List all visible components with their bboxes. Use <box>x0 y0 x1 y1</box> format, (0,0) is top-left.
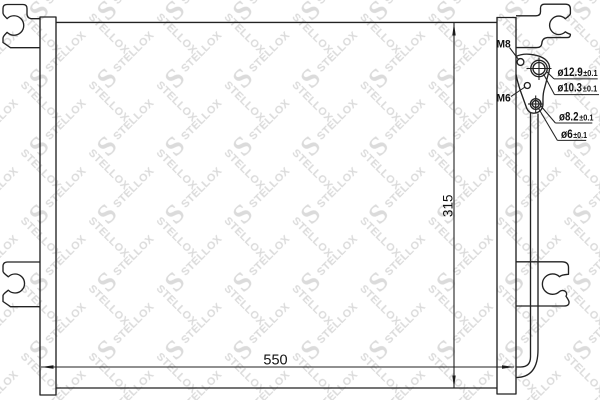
svg-text:ø8.2: ø8.2 <box>559 109 579 123</box>
svg-text:ø10.3: ø10.3 <box>558 81 583 95</box>
svg-text:ø6: ø6 <box>561 127 573 141</box>
svg-text:M6: M6 <box>497 92 511 104</box>
svg-text:550: 550 <box>263 353 287 369</box>
svg-text:ø12.9: ø12.9 <box>558 65 583 79</box>
svg-text:±0.1: ±0.1 <box>583 68 598 78</box>
svg-text:±0.1: ±0.1 <box>583 84 598 94</box>
svg-text:M8: M8 <box>497 38 511 50</box>
svg-text:±0.1: ±0.1 <box>579 112 594 122</box>
svg-text:315: 315 <box>440 195 455 218</box>
svg-text:±0.1: ±0.1 <box>573 130 587 140</box>
